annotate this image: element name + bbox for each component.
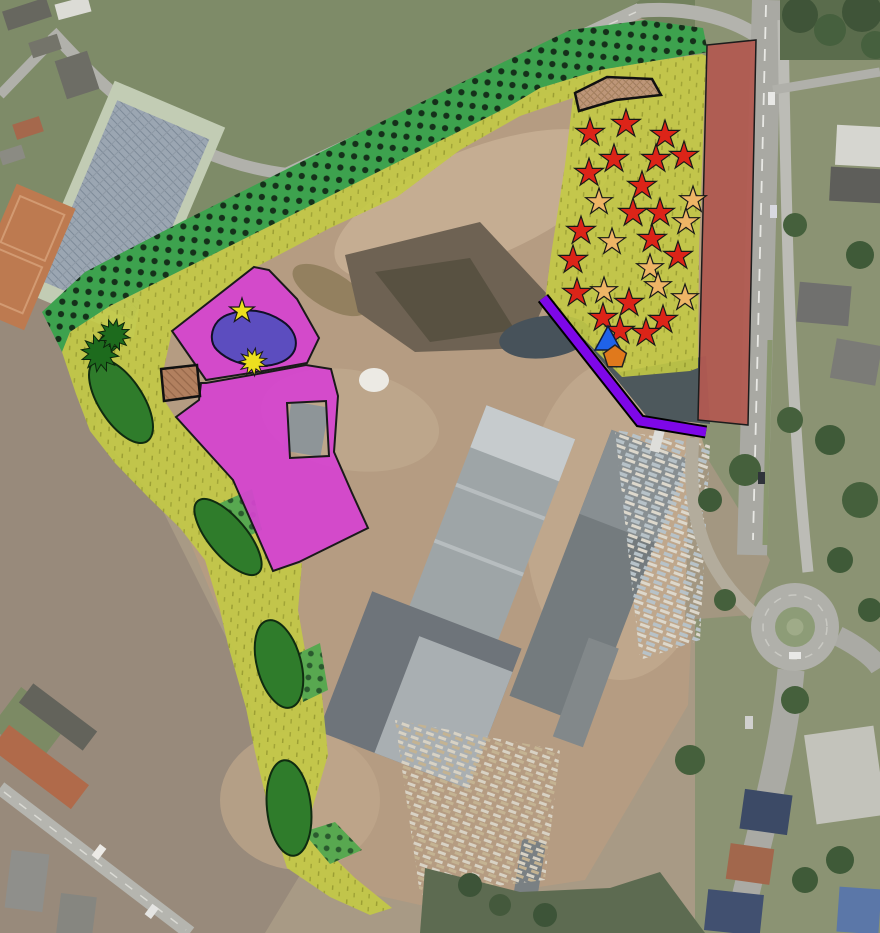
map-canvas [0,0,880,933]
white-dome [359,368,389,392]
roadside-strip-zone [698,40,756,425]
site-plan-map[interactable] [0,0,880,933]
structure-outline [161,365,200,401]
pallet-yard-south [395,720,560,895]
